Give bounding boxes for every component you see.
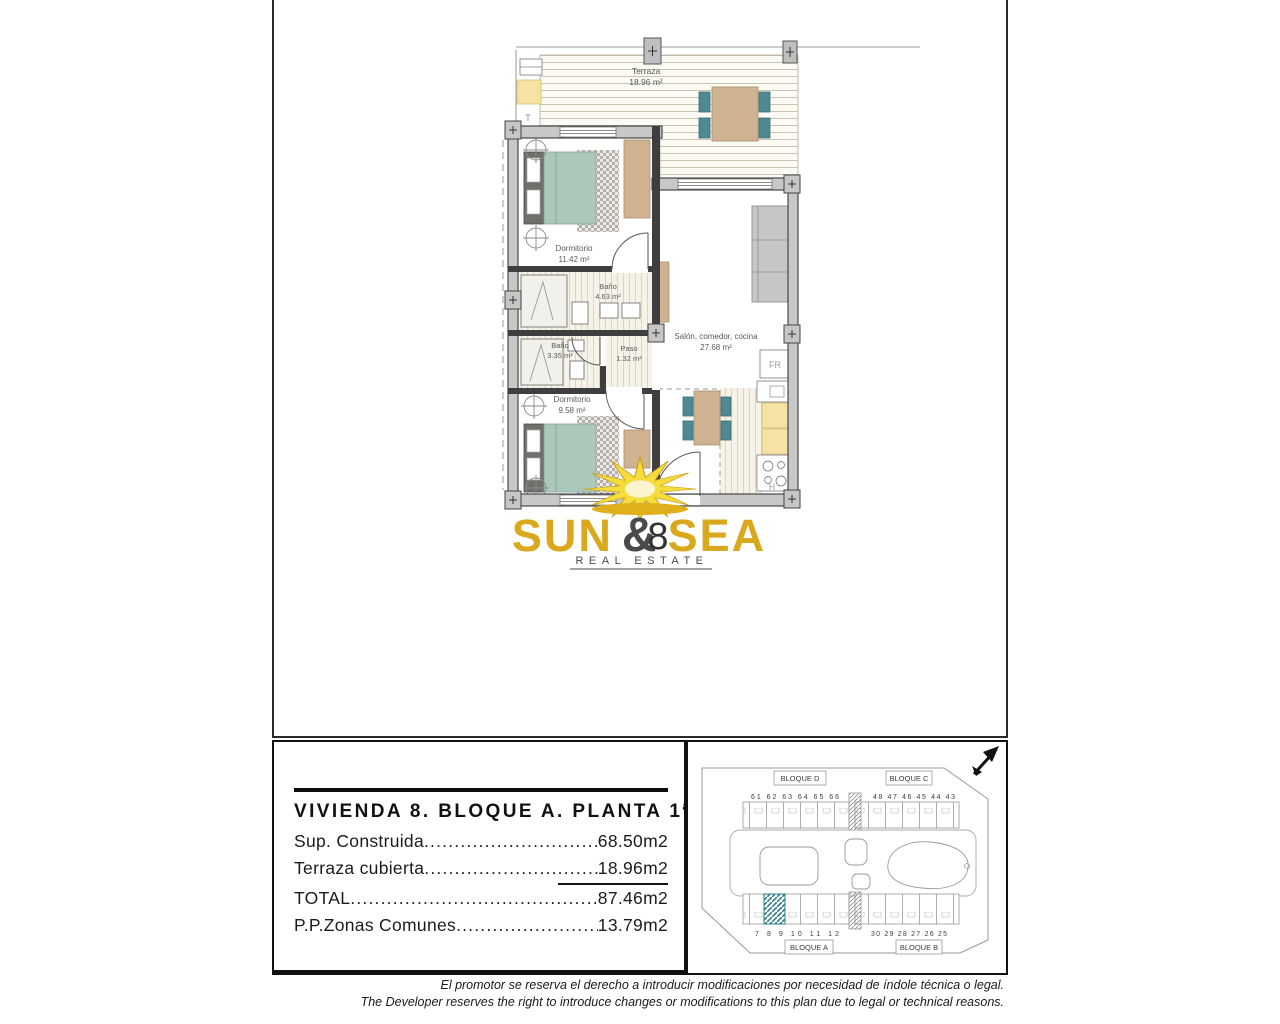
stair-core [849,892,861,929]
spa-shape-small [852,874,870,889]
pool-rect [760,847,818,885]
highlighted-unit-8 [764,894,785,924]
unit-numbers-top-left: 61 62 63 64 65 66 [751,794,839,801]
spa-shape [845,839,867,865]
wall-anchor [505,121,521,139]
info-row-sup-construida: Sup. Construida 68.50m2 [294,828,668,855]
bedroom1-furniture [524,140,650,232]
wall-anchor [784,175,800,193]
row-label: Sup. Construida [294,828,424,855]
unit-row [855,894,959,924]
room-label-bano1: Baño [599,282,617,291]
block-b-label: BLOQUE B [900,943,938,952]
info-row-terraza-cubierta: Terraza cubierta 18.96m2 [294,855,668,885]
fridge-label: FR [769,360,781,370]
wall-anchor [505,491,521,509]
logo-word-sea: SEA [668,510,767,561]
block-a-label: BLOQUE A [790,943,828,952]
survey-mark [521,393,547,419]
row-value: 87.46m2 [598,885,668,912]
disclaimer-es: El promotor se reserva el derecho a intr… [272,977,1004,994]
survey-mark [523,225,549,251]
unit-numbers-bottom-left: 7 8 9 10 11 12 [755,931,839,938]
terrace-storage-box [517,80,541,104]
unit-title: VIVIENDA 8. BLOQUE A. PLANTA 1ª [294,801,668,823]
unit-numbers-bottom-right: 30 29 28 27 26 25 [871,931,947,938]
floor-plan-drawing: T Terraza 18.96 m² [272,0,1004,736]
wall-anchor [505,291,521,309]
room-label-paso: Paso [620,344,637,353]
room-label-dormitorio1: Dormitorio [556,244,593,253]
row-value: 18.96m2 [558,855,668,885]
dot-leader [456,912,598,939]
dot-leader [424,828,598,855]
logo-word-sun: SUN [512,510,613,561]
unit-numbers-top-right: 48 47 46 45 44 43 [873,794,955,801]
logo-tagline: REAL ESTATE [575,555,708,567]
room-area-salon: 27.68 m² [700,343,732,352]
north-arrow-icon [972,746,999,776]
oven-label: H [769,482,776,492]
floor-plan-panel: T Terraza 18.96 m² [272,0,1008,738]
unit-row [855,802,959,828]
info-row-zonas-comunes: P.P.Zonas Comunes 13.79m2 [294,912,668,939]
unit-row [743,802,849,828]
row-value: 68.50m2 [598,828,668,855]
room-area-dormitorio1: 11.42 m² [559,255,590,264]
site-plan-drawing: BLOQUE D BLOQUE C 61 62 63 64 65 66 48 4… [688,742,1006,973]
kitchen-appliances: FR H [757,350,790,492]
info-row-total: TOTAL 87.46m2 [294,885,668,912]
title-rule [294,788,668,792]
wall-anchor [784,490,800,508]
room-area-paso: 1.32 m² [616,354,642,363]
site-plan-panel: BLOQUE D BLOQUE C 61 62 63 64 65 66 48 4… [686,740,1008,975]
row-value: 13.79m2 [598,912,668,939]
room-area-dormitorio2: 9.58 m² [558,406,585,415]
row-label: P.P.Zonas Comunes [294,912,456,939]
block-c-label: BLOQUE C [890,774,929,783]
row-label: TOTAL [294,885,350,912]
room-area-terraza: 18.96 m² [629,77,663,87]
terrace-t-label: T [525,113,531,123]
wall-anchor [784,325,800,343]
room-area-bano1: 4.63 m² [595,292,621,301]
stair-core [849,793,861,830]
room-label-salon: Salón, comedor, cocina [674,332,758,341]
room-area-bano2: 3.35 m² [547,351,573,360]
block-d-label: BLOQUE D [781,774,820,783]
dot-leader [350,885,598,912]
unit-row [743,894,849,924]
room-label-bano2: Baño [551,341,569,350]
disclaimer-en: The Developer reserves the right to intr… [272,994,1004,1011]
info-panel: VIVIENDA 8. BLOQUE A. PLANTA 1ª Sup. Con… [272,740,686,975]
row-label: Terraza cubierta [294,855,424,882]
room-label-dormitorio2: Dormitorio [554,395,591,404]
room-label-terraza: Terraza [632,66,661,76]
document-sheet: T Terraza 18.96 m² [0,0,1280,1024]
disclaimer: El promotor se reserva el derecho a intr… [272,977,1004,1011]
wall-anchor [648,324,664,342]
unit-number: 8 [647,516,668,558]
pool-kidney [888,842,968,889]
